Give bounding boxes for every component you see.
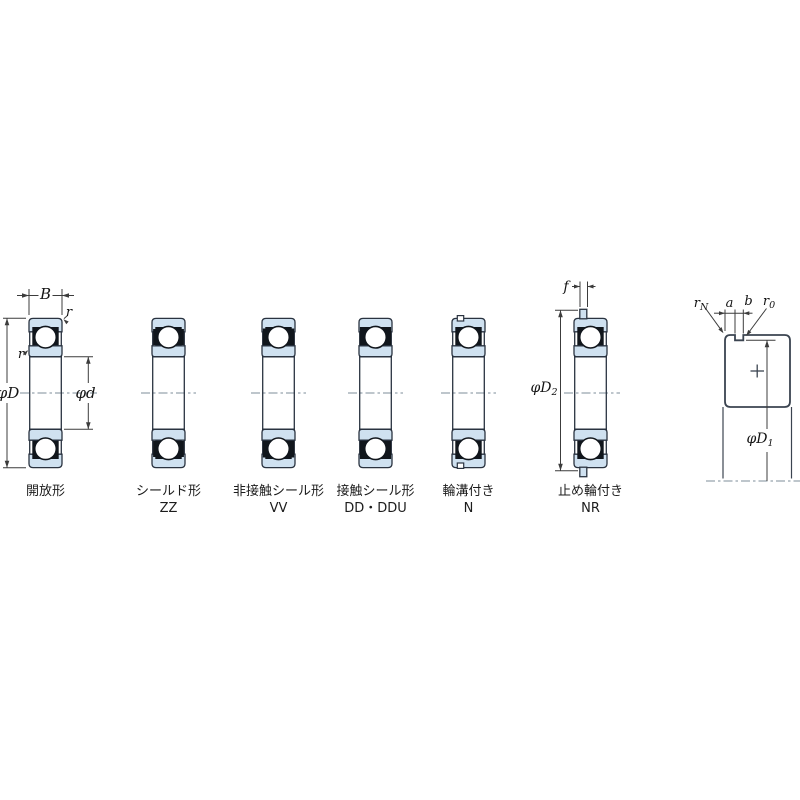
bearing-types-diagram: B r r φD φd f φD2 φD1 a b rN r0 [0,0,800,800]
caption-snap-ring-groove-type-code: N [399,501,539,517]
dim-label-snap-ring-width-f: f [562,279,571,295]
dim-label-bore-diameter: φd [75,384,95,402]
dim-label-width-B: B [39,285,51,303]
caption-snap-ring-type-code: NR [521,501,661,517]
caption-snap-ring-type-label: 止め輪付き [521,484,661,500]
bearing-types-figure: B r r φD φd f φD2 φD1 a b rN r0 開放形 シールド… [0,0,800,800]
dim-label-groove-position-a: a [726,296,734,311]
dim-label-groove-radius-rN: rN [694,296,709,313]
dim-label-corner-radius-left: r [18,347,25,362]
caption-snap-ring-groove-type-label: 輪溝付き [399,484,539,500]
caption-snap-ring-type: 止め輪付き NR [521,484,661,517]
bearing-n-drawing [441,316,496,469]
dim-label-corner-radius-top: r [66,305,73,320]
bearing-geometry [3,282,800,482]
dim-label-outer-diameter: φD [0,384,19,402]
caption-snap-ring-groove-type: 輪溝付き N [399,484,539,517]
bearing-nr-drawing [564,309,620,476]
bearing-zz-drawing [141,318,196,467]
dim-label-groove-diameter: φD1 [746,431,773,449]
dim-label-groove-radius-r0: r0 [763,294,775,311]
dim-label-snap-ring-od: φD2 [530,380,557,398]
bearing-vv-drawing [251,318,306,467]
snap-ring-groove-detail [706,309,800,482]
dim-label-groove-width-b: b [744,294,752,309]
bearing-dd-drawing [348,318,403,467]
